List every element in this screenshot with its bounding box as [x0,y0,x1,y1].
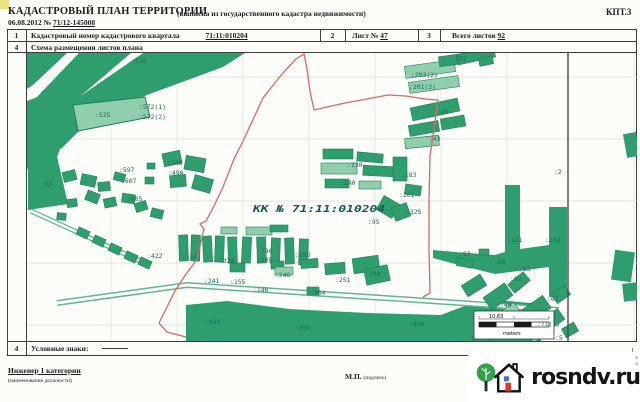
parcel-number-label: :62 [510,275,522,283]
document-form-code: КПТ.3 [606,7,631,17]
parcel-number-label: :597 [119,166,135,174]
table-divider-4 [440,29,441,41]
parcel-number-label: :63 [519,265,531,273]
row2-number: 4 [7,43,26,52]
schema-title: Схема размещения листов плана [31,43,143,52]
parcel-number-label: :45 [437,108,449,116]
parcel-number-label: :450 [295,324,311,332]
parcel-number-label: :2 [554,168,562,176]
parcel-number-label: :456 [409,320,425,328]
parcel-number-label: :43 [429,135,441,143]
row1-number: 1 [7,31,26,40]
parcel-number-label: :95 [368,218,380,226]
legend-row-number: 4 [7,344,26,353]
parcel-number-label: :194 [365,270,381,278]
table-divider-2 [345,29,346,41]
quarter-number-label: Кадастровый номер кадастрового квартала [31,31,180,40]
parcel-number-label: :422 [147,252,163,260]
watermark-text: rosndv.ru [531,365,640,390]
total-sheets-value: 92 [498,31,506,40]
signature-caption: (подпись) [364,375,387,381]
parcel-number-label: :105 [257,256,273,264]
quarter-number-map-label: КК № 71:11:010204 [252,204,386,215]
scale-bar-value: 10,63 [489,314,503,320]
legend-label: Условные знаки: [31,344,88,353]
parcel-number-label: 152 [455,55,467,63]
parcel-number-label: :98 [494,258,506,266]
parcel-number-label: :155 [230,278,246,286]
stamp-abbr: М.П. [345,372,362,381]
document-subtitle: (выписка из государственного кадастра не… [177,9,366,18]
parcel-number-label: :69 [41,180,53,188]
parcel-number-label: :142 [545,236,561,244]
parcel-number-label: :92 [459,250,471,258]
engineer-position-title: Инженер 1 категории [8,366,81,375]
parcel-number-label: :490 [168,169,184,177]
page-edge-marks: в и [635,356,638,368]
document-number-line: 06.08.2012 № 71/12-145008 [8,18,95,27]
row1-number-2: 2 [320,31,345,40]
tree-icon [477,363,496,391]
parcel-number-label: :71(1) [537,320,560,328]
parcel-number-label: :130 [347,161,363,169]
parcel-number-label: :572(2) [139,113,166,121]
parcel-number-label: :201(2) [409,83,436,91]
parcel-number-label: :151 [182,253,198,261]
parcel-number-label: :261 [399,191,415,199]
table-line-map-bottom [7,341,637,342]
quarter-number-value: 71:11:010204 [206,31,248,40]
table-border-bottom [7,355,469,356]
parcel-number-label: :5 [555,334,563,341]
parcel-number-label: :348 [167,159,183,167]
parcel-number-label: :605 [127,195,143,203]
watermark: rosndv.ru [468,352,640,402]
total-sheets-cell: Всего листов 92 [452,31,505,40]
parcel-number-label: :183 [401,171,417,179]
cadastral-plan-document: КАДАСТРОВЫЙ ПЛАН ТЕРРИТОРИИ (выписка из … [0,0,640,402]
table-border-top [7,29,637,30]
watermark-logo [476,354,526,400]
parcel-number-label: :241 [204,277,220,285]
forest-areas [27,53,637,341]
total-sheets-label: Всего листов [452,31,496,40]
position-caption: (наименование должности) [8,378,72,384]
parcel-number-label: :140 [340,179,356,187]
parcel-number-label: :607 [121,177,137,185]
parcel-number-label: :48 [500,301,512,309]
parcel-number-label: :203(2) [411,71,438,79]
parcel-number-label: :578 [131,57,147,65]
parcel-number-label: :246 [275,271,291,279]
parcel-number-label: :251 [335,276,351,284]
table-border-left [7,29,8,356]
house-icon [495,364,522,391]
stamp-signature: М.П. (подпись) [345,372,386,381]
parcel-number-label: :525 [95,111,111,119]
parcel-number-label: :193 [295,251,311,259]
parcel-number-label: :320 [219,257,235,265]
legend-line-symbol [102,348,128,349]
parcel-number-label: :454 [205,318,221,326]
parcel-number-label: :67 [547,295,559,303]
date-prefix: 06.08.2012 № [8,18,51,27]
sheet-value: 47 [380,31,388,40]
sheet-number-cell: Лист № 47 [352,31,388,40]
parcel-number-label: :204 [310,289,326,297]
parcel-number-label: :572(1) [139,103,166,111]
edge-mark-bottom: и [635,362,638,368]
parcel-number-label: :146 [253,286,269,294]
parcel-number-label: :325 [406,208,422,216]
date-number: 71/12-145008 [53,18,95,27]
row1-label: Кадастровый номер кадастрового квартала … [31,31,248,40]
parcel-number-label: :141 [507,236,523,244]
row1-number-3: 3 [418,31,440,40]
scale-bar-unit: meters [503,331,521,337]
cadastral-map-schema: 10,63 meters КК № 71:11:010204 :578:525:… [27,53,637,341]
parcel-number-label: :196 [257,247,273,255]
sheet-label: Лист № [352,31,378,40]
